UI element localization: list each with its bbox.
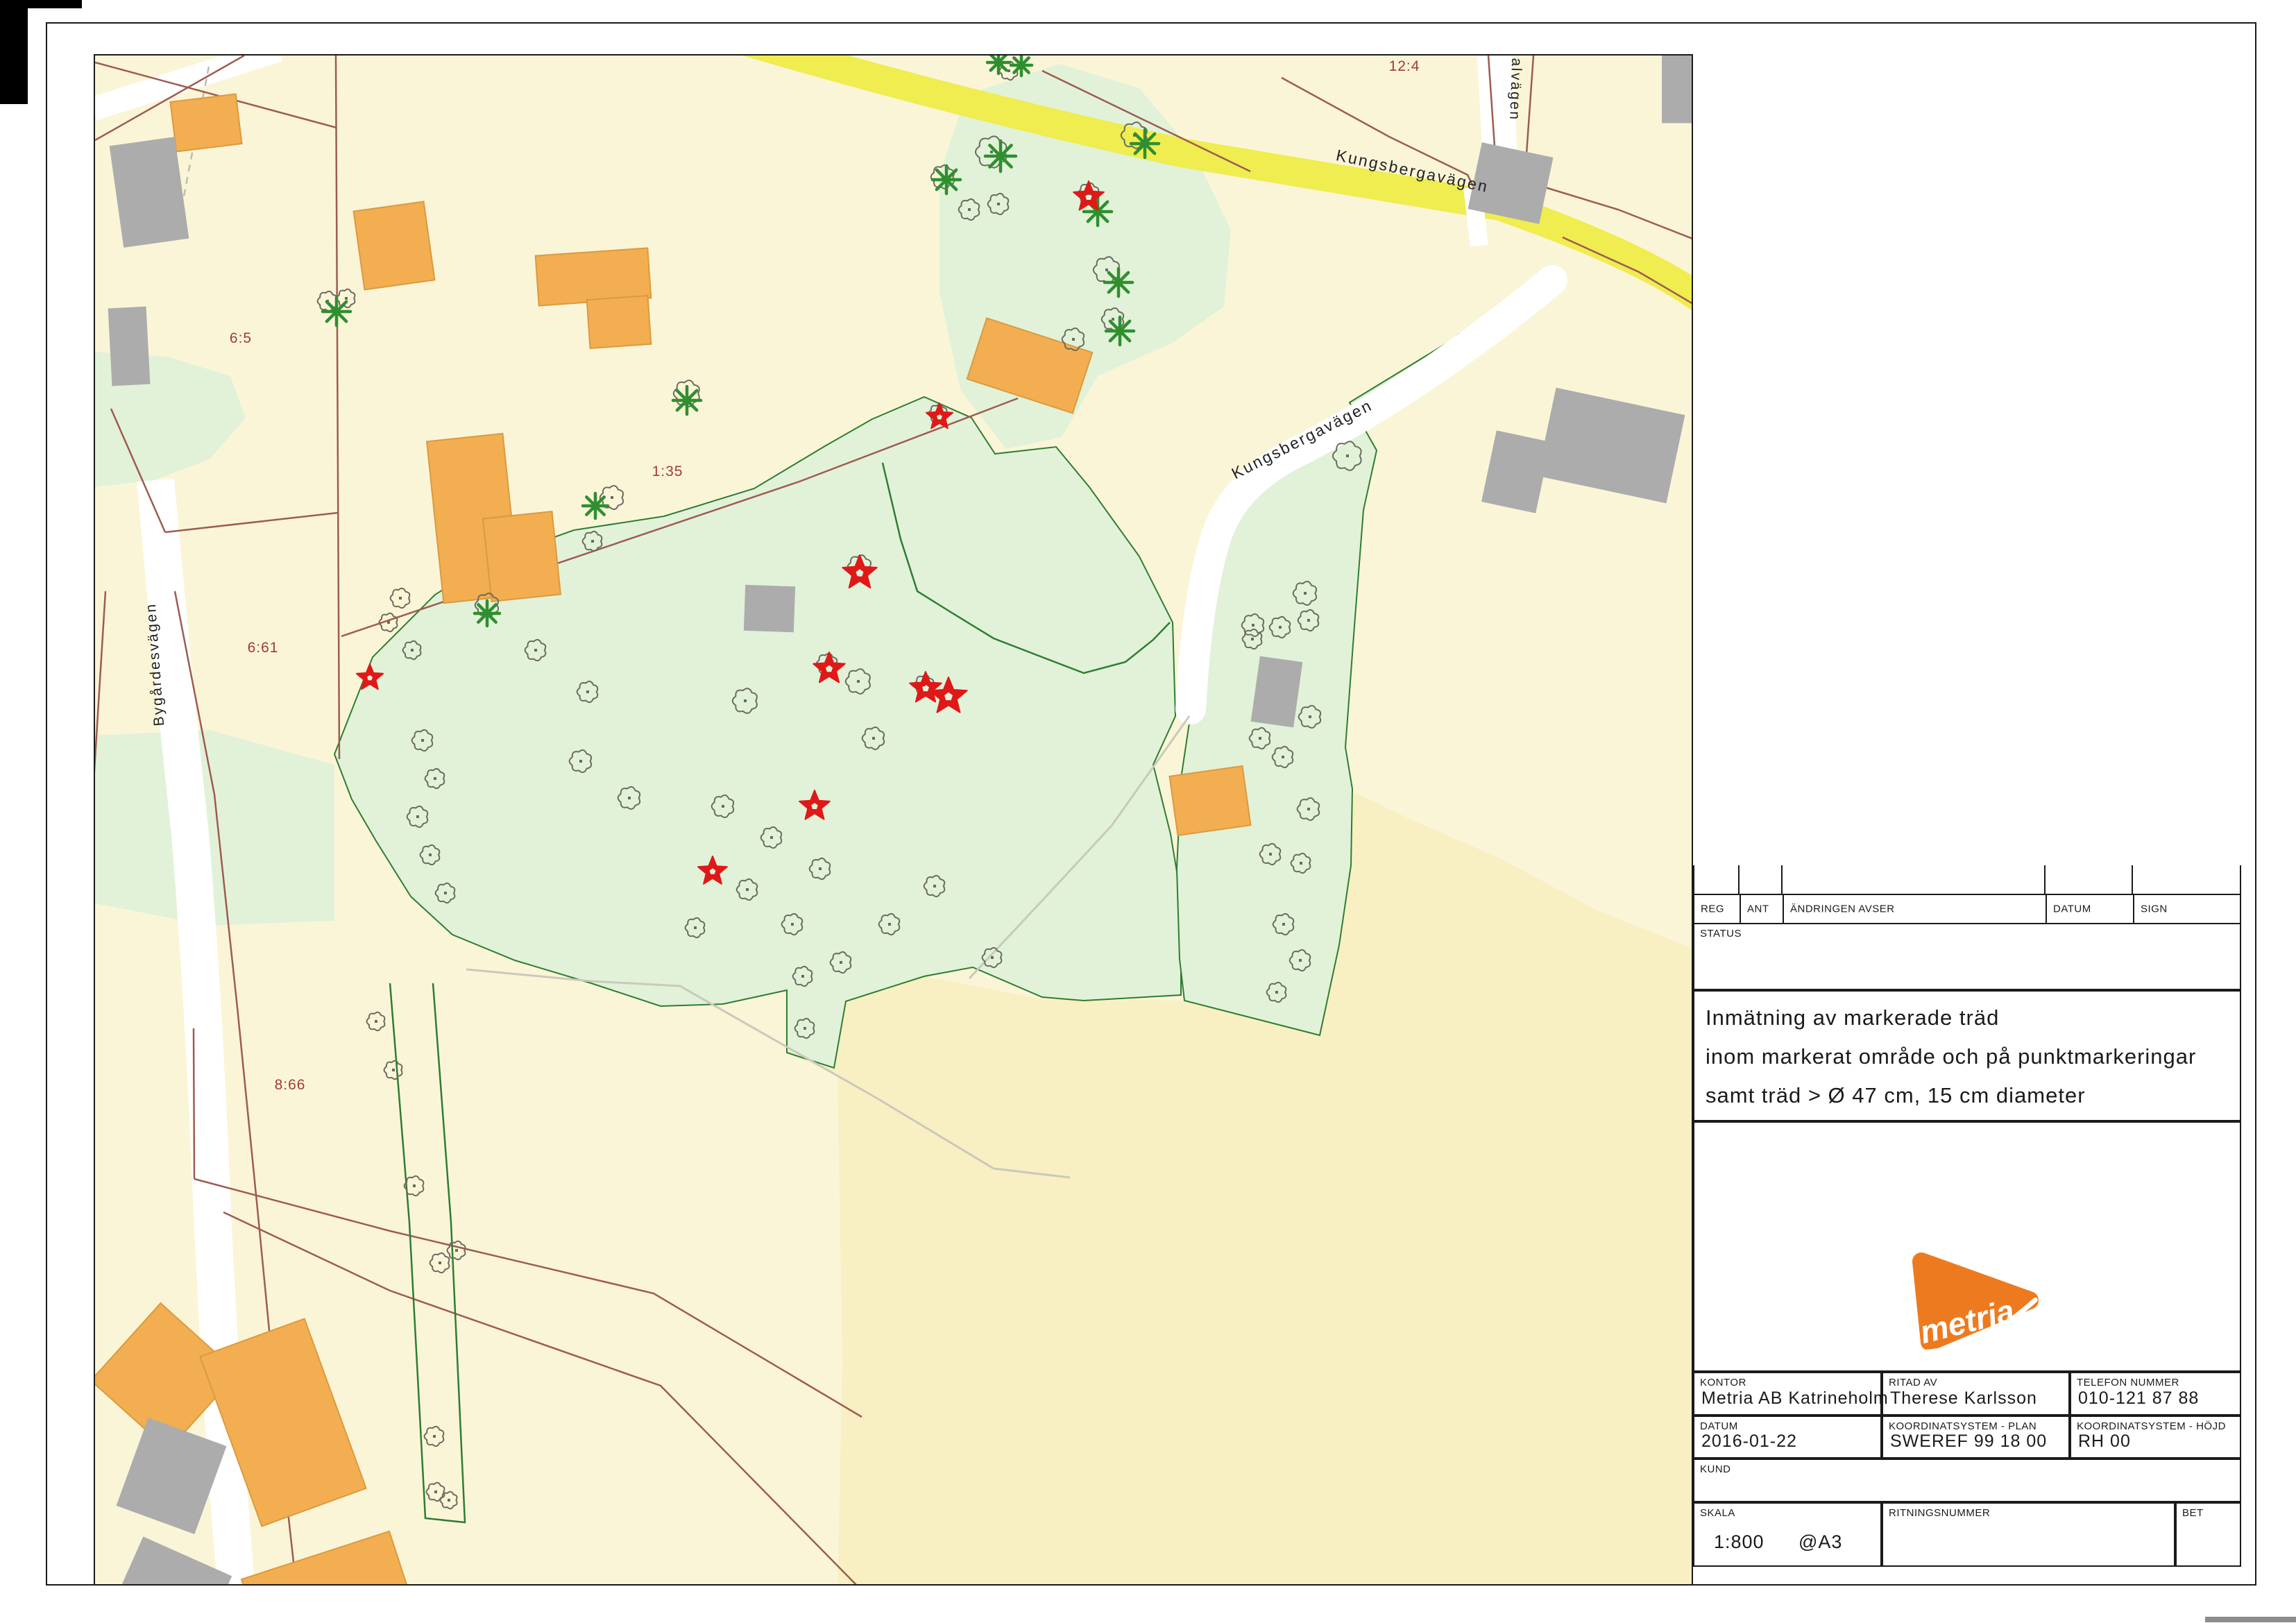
tree-trunk-dot	[392, 1069, 395, 1071]
conifer-tree-icon	[933, 166, 960, 194]
drawing-title-line1: Inmätning av markerade träd	[1706, 999, 2229, 1037]
map-svg: 12:46:51:356:618:66KungsbergavägenKungsb…	[95, 56, 1693, 1586]
building-gray	[1538, 388, 1685, 504]
tree-trunk-dot	[1007, 69, 1010, 72]
conifer-tree-icon	[475, 601, 500, 626]
tree-trunk-dot	[387, 621, 390, 624]
parcel-number-label: 12:4	[1389, 58, 1420, 74]
skala-cell: SKALA 1:800 @A3	[1693, 1502, 1882, 1567]
tree-trunk-dot	[434, 777, 436, 780]
koord-hojd-cell: KOORDINATSYSTEM - HÖJD RH 00	[2070, 1416, 2241, 1459]
bet-cell: BET	[2175, 1502, 2241, 1567]
tree-trunk-dot	[746, 888, 749, 891]
tree-trunk-dot	[429, 853, 432, 856]
drawing-sheet: 12:46:51:356:618:66KungsbergavägenKungsb…	[0, 0, 2296, 1623]
tree-trunk-dot	[1309, 715, 1311, 718]
map-canvas: 12:46:51:356:618:66KungsbergavägenKungsb…	[94, 54, 1693, 1586]
tree-trunk-dot	[455, 1249, 458, 1252]
tree-trunk-dot	[872, 737, 875, 740]
tree-trunk-dot	[991, 956, 994, 959]
status-label: STATUS	[1700, 928, 1742, 940]
telefon-label: TELEFON NUMMER	[2077, 1377, 2179, 1388]
koord-hojd-value: RH 00	[2078, 1431, 2131, 1452]
skala-value: 1:800	[1714, 1531, 1764, 1553]
ritningsnummer-cell: RITNINGSNUMMER	[1882, 1502, 2175, 1567]
kund-cell: KUND	[1693, 1459, 2241, 1502]
tree-trunk-dot	[345, 297, 348, 300]
building-orange	[587, 296, 652, 348]
tree-trunk-dot	[791, 923, 794, 926]
revision-header-row: REG ANT ÄNDRINGEN AVSER DATUM SIGN	[1693, 894, 2241, 924]
bet-label: BET	[2182, 1507, 2204, 1519]
rev-col-sign: SIGN	[2141, 903, 2168, 915]
tree-trunk-dot	[1282, 756, 1284, 758]
conifer-tree-icon	[673, 386, 701, 414]
building-gray	[744, 585, 795, 632]
tree-trunk-dot	[857, 680, 860, 683]
scan-artifact-bar	[2205, 1617, 2296, 1622]
tree-trunk-dot	[413, 1184, 416, 1187]
conifer-tree-icon	[985, 141, 1016, 171]
tree-trunk-dot	[534, 649, 537, 652]
road-name-label: Dalvägen	[1506, 56, 1525, 121]
datum-value: 2016-01-22	[1701, 1431, 1797, 1452]
tree-trunk-dot	[819, 867, 822, 870]
tree-trunk-dot	[416, 815, 419, 818]
revision-row-empty	[1693, 865, 2241, 895]
tree-trunk-dot	[439, 1261, 441, 1264]
conifer-tree-icon	[1105, 269, 1132, 296]
tree-trunk-dot	[694, 926, 697, 929]
tree-trunk-dot	[722, 805, 724, 808]
corner-crop-mark-horizontal	[0, 0, 82, 8]
tree-trunk-dot	[1307, 808, 1310, 810]
tree-trunk-dot	[1299, 959, 1302, 962]
tree-trunk-dot	[840, 961, 842, 964]
tree-trunk-dot	[434, 1490, 437, 1493]
building-orange	[241, 1531, 411, 1586]
koord-plan-label: KOORDINATSYSTEM - PLAN	[1889, 1420, 2036, 1432]
telefon-cell: TELEFON NUMMER 010-121 87 88	[2070, 1372, 2241, 1416]
tree-trunk-dot	[1300, 862, 1302, 865]
rev-col-reg: REG	[1701, 903, 1724, 915]
tree-trunk-dot	[433, 1435, 436, 1438]
building-orange	[170, 94, 241, 151]
tree-trunk-dot	[997, 203, 1000, 205]
tree-trunk-dot	[628, 797, 631, 799]
paper-size: @A3	[1798, 1531, 1842, 1553]
tree-trunk-dot	[611, 496, 613, 499]
parcel-number-label: 8:66	[275, 1077, 306, 1093]
tree-trunk-dot	[375, 1020, 377, 1023]
kontor-cell: KONTOR Metria AB Katrineholm	[1693, 1372, 1882, 1416]
tree-trunk-dot	[801, 975, 804, 978]
datum-cell: DATUM 2016-01-22	[1693, 1416, 1882, 1459]
building-gray	[1251, 656, 1303, 728]
tree-trunk-dot	[1307, 619, 1310, 622]
building-gray	[1662, 56, 1693, 124]
drawing-title-line3: samt träd > Ø 47 cm, 15 cm diameter	[1706, 1076, 2229, 1115]
tree-trunk-dot	[421, 739, 424, 742]
tree-trunk-dot	[444, 892, 447, 894]
drawing-title-line2: inom markerat område och på punktmarkeri…	[1706, 1037, 2229, 1076]
tree-trunk-dot	[448, 1499, 450, 1502]
parcel-number-label: 6:5	[230, 330, 252, 346]
building-orange	[1170, 766, 1251, 835]
ritad-av-value: Therese Karlsson	[1890, 1388, 2037, 1409]
tree-trunk-dot	[586, 690, 589, 693]
rev-col-ant: ANT	[1747, 903, 1769, 915]
koord-hojd-label: KOORDINATSYSTEM - HÖJD	[2077, 1420, 2226, 1432]
drawing-title-box: Inmätning av markerade träd inom markera…	[1693, 990, 2241, 1121]
tree-trunk-dot	[1346, 454, 1349, 457]
tree-trunk-dot	[1105, 269, 1108, 271]
koord-plan-value: SWEREF 99 18 00	[1890, 1431, 2047, 1452]
metria-logo: metria	[1900, 1246, 2053, 1364]
tree-trunk-dot	[1304, 592, 1307, 595]
tree-trunk-dot	[803, 1027, 806, 1030]
telefon-value: 010-121 87 88	[2078, 1388, 2199, 1409]
corner-crop-mark	[0, 0, 28, 104]
tree-trunk-dot	[1251, 638, 1254, 640]
tree-trunk-dot	[990, 151, 993, 153]
building-orange	[354, 201, 435, 289]
tree-trunk-dot	[1252, 624, 1255, 627]
conifer-tree-icon	[323, 298, 350, 325]
skala-label: SKALA	[1700, 1507, 1735, 1519]
tree-trunk-dot	[1259, 737, 1261, 740]
tree-trunk-dot	[968, 208, 971, 211]
status-box: STATUS	[1693, 923, 2241, 990]
rev-col-datum: DATUM	[2053, 903, 2091, 915]
kontor-label: KONTOR	[1700, 1377, 1746, 1388]
koord-plan-cell: KOORDINATSYSTEM - PLAN SWEREF 99 18 00	[1882, 1416, 2070, 1459]
parcel-number-label: 1:35	[652, 464, 683, 479]
ritningsnummer-label: RITNINGSNUMMER	[1889, 1507, 1990, 1519]
logo-box: metria	[1693, 1121, 2241, 1372]
conifer-tree-icon	[583, 493, 608, 518]
building-orange	[483, 511, 561, 602]
tree-trunk-dot	[591, 540, 594, 543]
tree-trunk-dot	[933, 885, 936, 887]
kund-label: KUND	[1700, 1463, 1731, 1475]
tree-trunk-dot	[1072, 338, 1075, 341]
tree-trunk-dot	[1275, 991, 1278, 994]
tree-trunk-dot	[770, 836, 773, 839]
tree-trunk-dot	[1279, 626, 1282, 629]
rev-col-andringen: ÄNDRINGEN AVSER	[1790, 903, 1895, 915]
tree-trunk-dot	[579, 760, 582, 763]
tree-trunk-dot	[744, 699, 747, 702]
kontor-value: Metria AB Katrineholm	[1701, 1388, 1889, 1409]
conifer-tree-icon	[987, 56, 1010, 74]
tree-trunk-dot	[1112, 318, 1114, 321]
building-gray	[110, 137, 189, 248]
ritad-av-label: RITAD AV	[1889, 1377, 1937, 1388]
tree-trunk-dot	[1269, 853, 1272, 856]
conifer-tree-icon	[1131, 130, 1159, 158]
building-gray	[108, 307, 151, 386]
tree-trunk-dot	[1282, 923, 1285, 926]
tree-trunk-dot	[888, 923, 891, 926]
datum-label: DATUM	[1700, 1420, 1738, 1432]
ritad-av-cell: RITAD AV Therese Karlsson	[1882, 1372, 2070, 1416]
conifer-tree-icon	[1011, 56, 1032, 76]
conifer-tree-icon	[1106, 317, 1134, 345]
green-area-left-lower	[95, 730, 334, 926]
tree-trunk-dot	[399, 597, 402, 600]
building-gray	[1481, 430, 1551, 513]
parcel-number-label: 6:61	[248, 640, 279, 656]
tree-trunk-dot	[411, 649, 414, 652]
